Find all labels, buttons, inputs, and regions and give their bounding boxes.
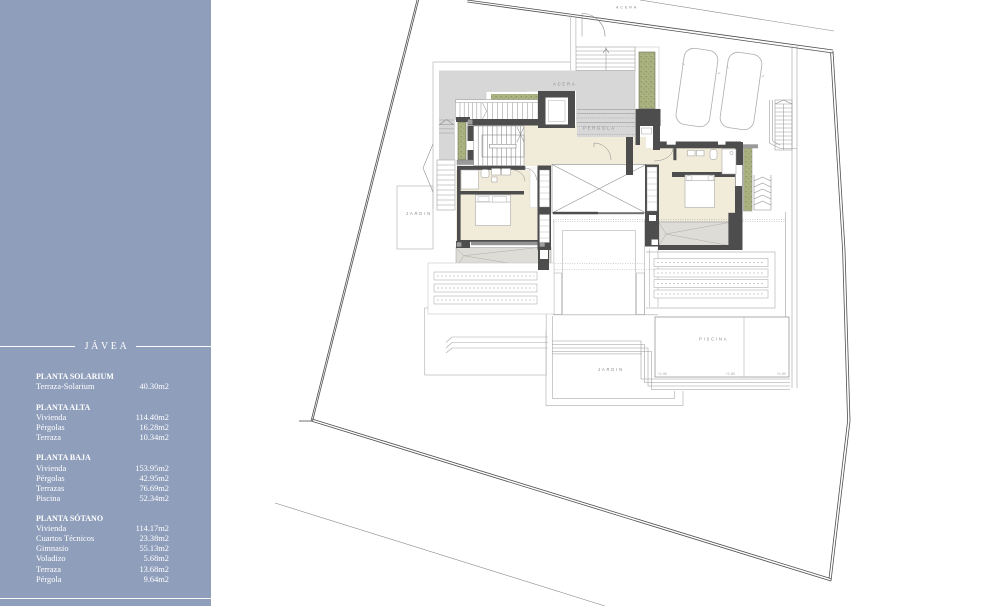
svg-text:JARDIN: JARDIN <box>598 367 624 372</box>
svg-text:ACERA: ACERA <box>553 82 576 87</box>
svg-text:+1.90: +1.90 <box>777 372 786 376</box>
svg-text:PISCINA: PISCINA <box>699 337 728 342</box>
svg-text:ACERA: ACERA <box>616 6 638 10</box>
svg-text:+1.80: +1.80 <box>726 372 735 376</box>
svg-text:PERGOLA: PERGOLA <box>583 126 616 131</box>
svg-text:JARDIN: JARDIN <box>406 211 432 216</box>
svg-text:+1.90: +1.90 <box>658 372 667 376</box>
